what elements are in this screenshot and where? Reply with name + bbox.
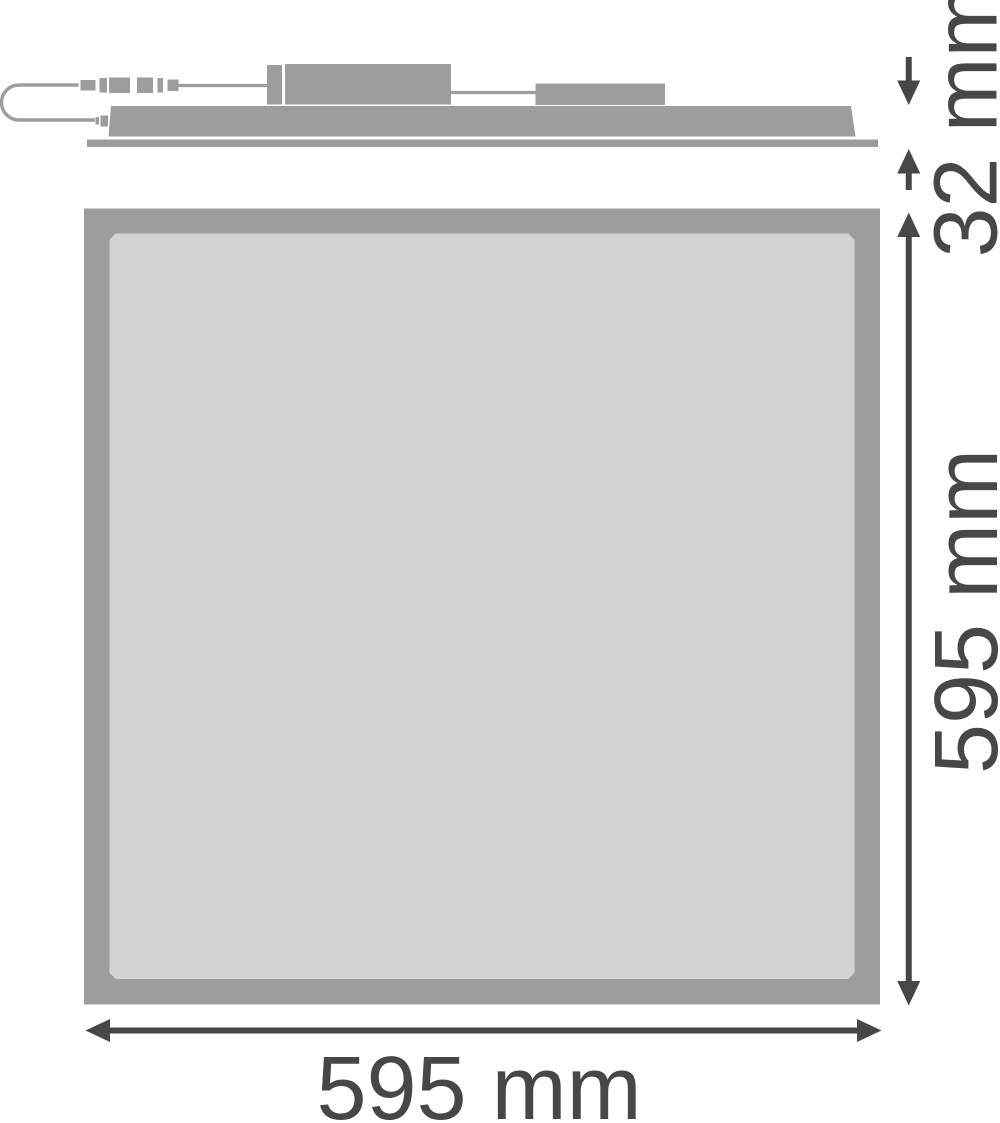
svg-text:595 mm: 595 mm (917, 449, 1000, 774)
svg-text:595 mm: 595 mm (316, 1039, 641, 1123)
svg-text:32 mm: 32 mm (917, 0, 1000, 258)
